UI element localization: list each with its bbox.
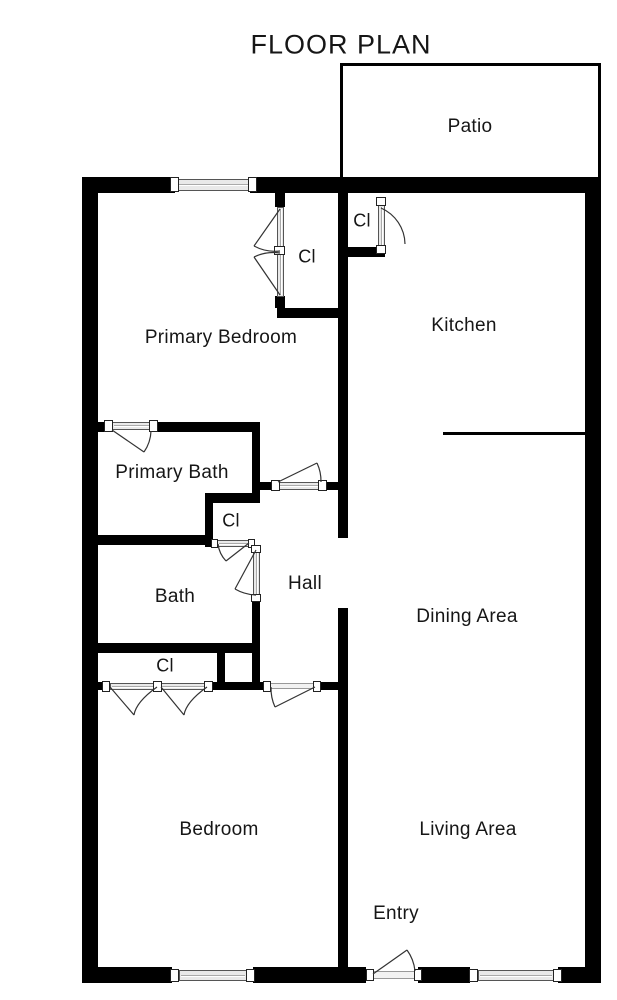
door-window-jamb (153, 681, 162, 692)
closet-label-hall: Cl (222, 511, 240, 532)
door-window-jamb (170, 177, 179, 192)
wall-segment (205, 493, 260, 503)
room-label-dining-area: Dining Area (416, 606, 518, 628)
window-or-door-track (179, 970, 247, 981)
door-window-jamb (102, 681, 110, 692)
door-window-jamb (248, 177, 257, 192)
floor-plan: FLOOR PLAN Patio Cl Cl Primary Bedroom K… (0, 0, 617, 1000)
room-label-primary-bedroom: Primary Bedroom (145, 327, 297, 349)
wall-segment (152, 422, 260, 432)
wall-segment (585, 177, 601, 983)
door-window-jamb (204, 681, 213, 692)
door-window-jamb (211, 539, 218, 548)
wall-segment (207, 682, 267, 690)
door-threshold (270, 683, 314, 689)
wall-segment (98, 535, 213, 545)
door-swing-bedroom (271, 687, 315, 707)
closet-label-primary: Cl (298, 247, 316, 268)
wall-segment (558, 967, 601, 983)
bifold-door-bedroom-closet-left (110, 687, 157, 715)
page-title: FLOOR PLAN (250, 30, 431, 61)
door-window-jamb (318, 480, 327, 491)
closet-label-kitchen: Cl (353, 211, 371, 232)
door-window-jamb (366, 969, 374, 981)
door-window-jamb (271, 480, 280, 491)
door-window-jamb (251, 594, 261, 602)
door-window-jamb (553, 969, 562, 982)
wall-segment (250, 177, 601, 193)
door-window-jamb (251, 545, 261, 553)
door-track-vertical (253, 549, 260, 597)
room-label-patio: Patio (448, 116, 493, 138)
wall-segment (82, 177, 175, 193)
room-label-bath: Bath (155, 586, 195, 608)
door-threshold (373, 971, 415, 979)
wall-segment (418, 967, 470, 983)
door-window-jamb (414, 969, 422, 981)
wall-segment (275, 193, 285, 207)
door-window-jamb (376, 245, 386, 254)
wall-segment (252, 653, 260, 683)
room-label-bedroom: Bedroom (179, 819, 258, 841)
wall-segment (217, 653, 225, 683)
window-or-door-track (478, 970, 554, 981)
door-window-jamb (246, 969, 255, 982)
closet-label-bedroom: Cl (156, 656, 174, 677)
door-window-jamb (170, 969, 179, 982)
room-label-entry: Entry (373, 903, 419, 925)
wall-segment (98, 643, 255, 653)
kitchen-counter-line (443, 432, 585, 435)
door-track-vertical (378, 205, 385, 247)
door-swing-primary-bath (112, 430, 151, 452)
room-label-hall: Hall (288, 573, 322, 595)
door-window-jamb (149, 420, 158, 432)
window-or-door-track (217, 540, 250, 547)
room-label-primary-bath: Primary Bath (115, 462, 228, 484)
window-or-door-track (112, 422, 152, 430)
wall-segment (277, 308, 348, 318)
wall-segment (82, 967, 172, 983)
window-or-door-track (175, 179, 250, 191)
window-or-door-track (277, 482, 320, 490)
door-window-jamb (376, 197, 386, 206)
door-window-jamb (274, 246, 285, 255)
bifold-door-bedroom-closet-right (161, 687, 207, 715)
door-window-jamb (469, 969, 478, 982)
wall-segment (338, 608, 348, 967)
door-window-jamb (104, 420, 113, 432)
wall-segment (253, 967, 366, 983)
room-label-living-area: Living Area (419, 819, 516, 841)
room-label-kitchen: Kitchen (431, 315, 496, 337)
door-swing-primary-bedroom (278, 463, 321, 482)
wall-segment (317, 682, 348, 690)
wall-segment (275, 296, 285, 308)
door-window-jamb (313, 681, 321, 692)
door-window-jamb (263, 681, 271, 692)
wall-segment (82, 177, 98, 983)
wall-segment (252, 422, 260, 503)
